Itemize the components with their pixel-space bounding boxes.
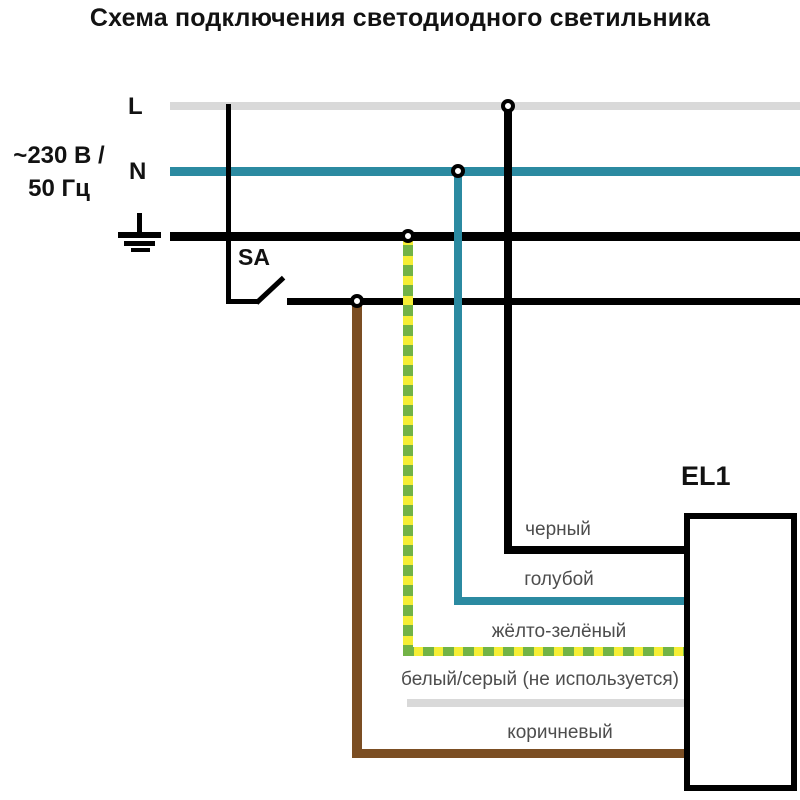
n-wire bbox=[170, 167, 800, 176]
switch-label: SA bbox=[238, 244, 270, 271]
diagram-title: Схема подключения светодиодного светильн… bbox=[0, 4, 800, 33]
neutral-label: N bbox=[129, 158, 146, 186]
wire-label-black: черный bbox=[525, 519, 591, 541]
white-gray-unused-wire bbox=[407, 699, 685, 707]
wire-label-white-gray: белый/серый (не используется) bbox=[401, 669, 679, 691]
wire-label-brown: коричневый bbox=[507, 722, 613, 744]
phase-label: L bbox=[128, 93, 143, 121]
luminaire-box bbox=[684, 513, 797, 791]
blue-wire-horizontal bbox=[454, 597, 685, 605]
wire-label-yellow-green: жёлто-зелёный bbox=[492, 621, 627, 643]
yellow-green-wire-horizontal bbox=[403, 647, 685, 656]
switch-blade-icon bbox=[255, 276, 285, 305]
l-wire bbox=[170, 102, 800, 110]
brown-wire-vertical bbox=[352, 301, 362, 758]
junction-node-phase bbox=[501, 99, 515, 113]
earth-stem bbox=[137, 213, 142, 234]
luminaire-label: EL1 bbox=[681, 461, 731, 492]
supply-voltage-label: ~230 В / 50 Гц bbox=[0, 139, 118, 205]
pe-wire bbox=[170, 232, 800, 241]
earth-bar-1 bbox=[118, 232, 161, 238]
blue-wire-vertical bbox=[454, 171, 462, 605]
brown-wire-horizontal bbox=[352, 749, 685, 758]
yellow-green-wire-vertical bbox=[403, 236, 413, 656]
wiring-diagram: Схема подключения светодиодного светильн… bbox=[0, 0, 800, 800]
junction-node-switched bbox=[350, 294, 364, 308]
switch-stub-wire bbox=[226, 299, 259, 304]
earth-bar-3 bbox=[131, 248, 150, 252]
black-wire-horizontal bbox=[504, 546, 685, 554]
switch-feed-wire bbox=[226, 104, 231, 304]
wire-label-blue: голубой bbox=[524, 569, 594, 591]
voltage-line-1: ~230 В / bbox=[0, 139, 118, 172]
junction-node-earth bbox=[401, 229, 415, 243]
junction-node-neutral bbox=[451, 164, 465, 178]
earth-bar-2 bbox=[124, 241, 155, 246]
black-wire-vertical bbox=[504, 106, 512, 554]
voltage-line-2: 50 Гц bbox=[0, 172, 118, 205]
